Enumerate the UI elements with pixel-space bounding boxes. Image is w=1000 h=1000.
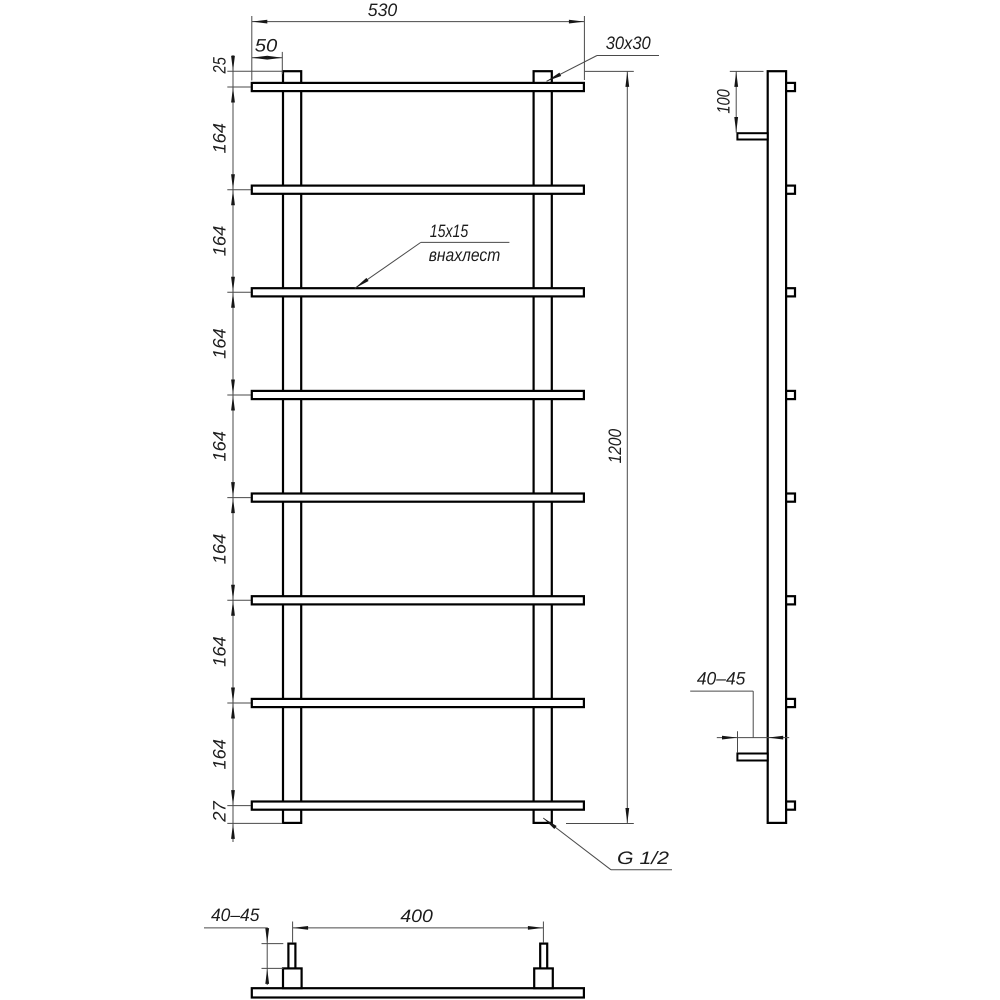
svg-text:27: 27 [210, 800, 230, 823]
svg-text:164: 164 [210, 226, 230, 257]
svg-text:40–45: 40–45 [211, 905, 260, 925]
svg-text:164: 164 [210, 328, 230, 359]
svg-text:164: 164 [210, 739, 230, 770]
svg-text:164: 164 [210, 431, 230, 462]
svg-text:1200: 1200 [605, 429, 625, 464]
svg-text:внахлест: внахлест [429, 245, 501, 265]
svg-text:30x30: 30x30 [606, 33, 651, 53]
svg-text:100: 100 [714, 89, 734, 114]
svg-text:G 1/2: G 1/2 [617, 848, 669, 868]
svg-text:530: 530 [368, 0, 398, 20]
svg-text:400: 400 [400, 906, 433, 926]
svg-text:15x15: 15x15 [430, 221, 469, 241]
svg-text:40–45: 40–45 [697, 669, 746, 689]
svg-text:164: 164 [210, 534, 230, 565]
svg-text:50: 50 [255, 36, 278, 56]
svg-text:164: 164 [210, 636, 230, 667]
svg-text:25: 25 [210, 56, 230, 74]
svg-text:164: 164 [210, 123, 230, 154]
